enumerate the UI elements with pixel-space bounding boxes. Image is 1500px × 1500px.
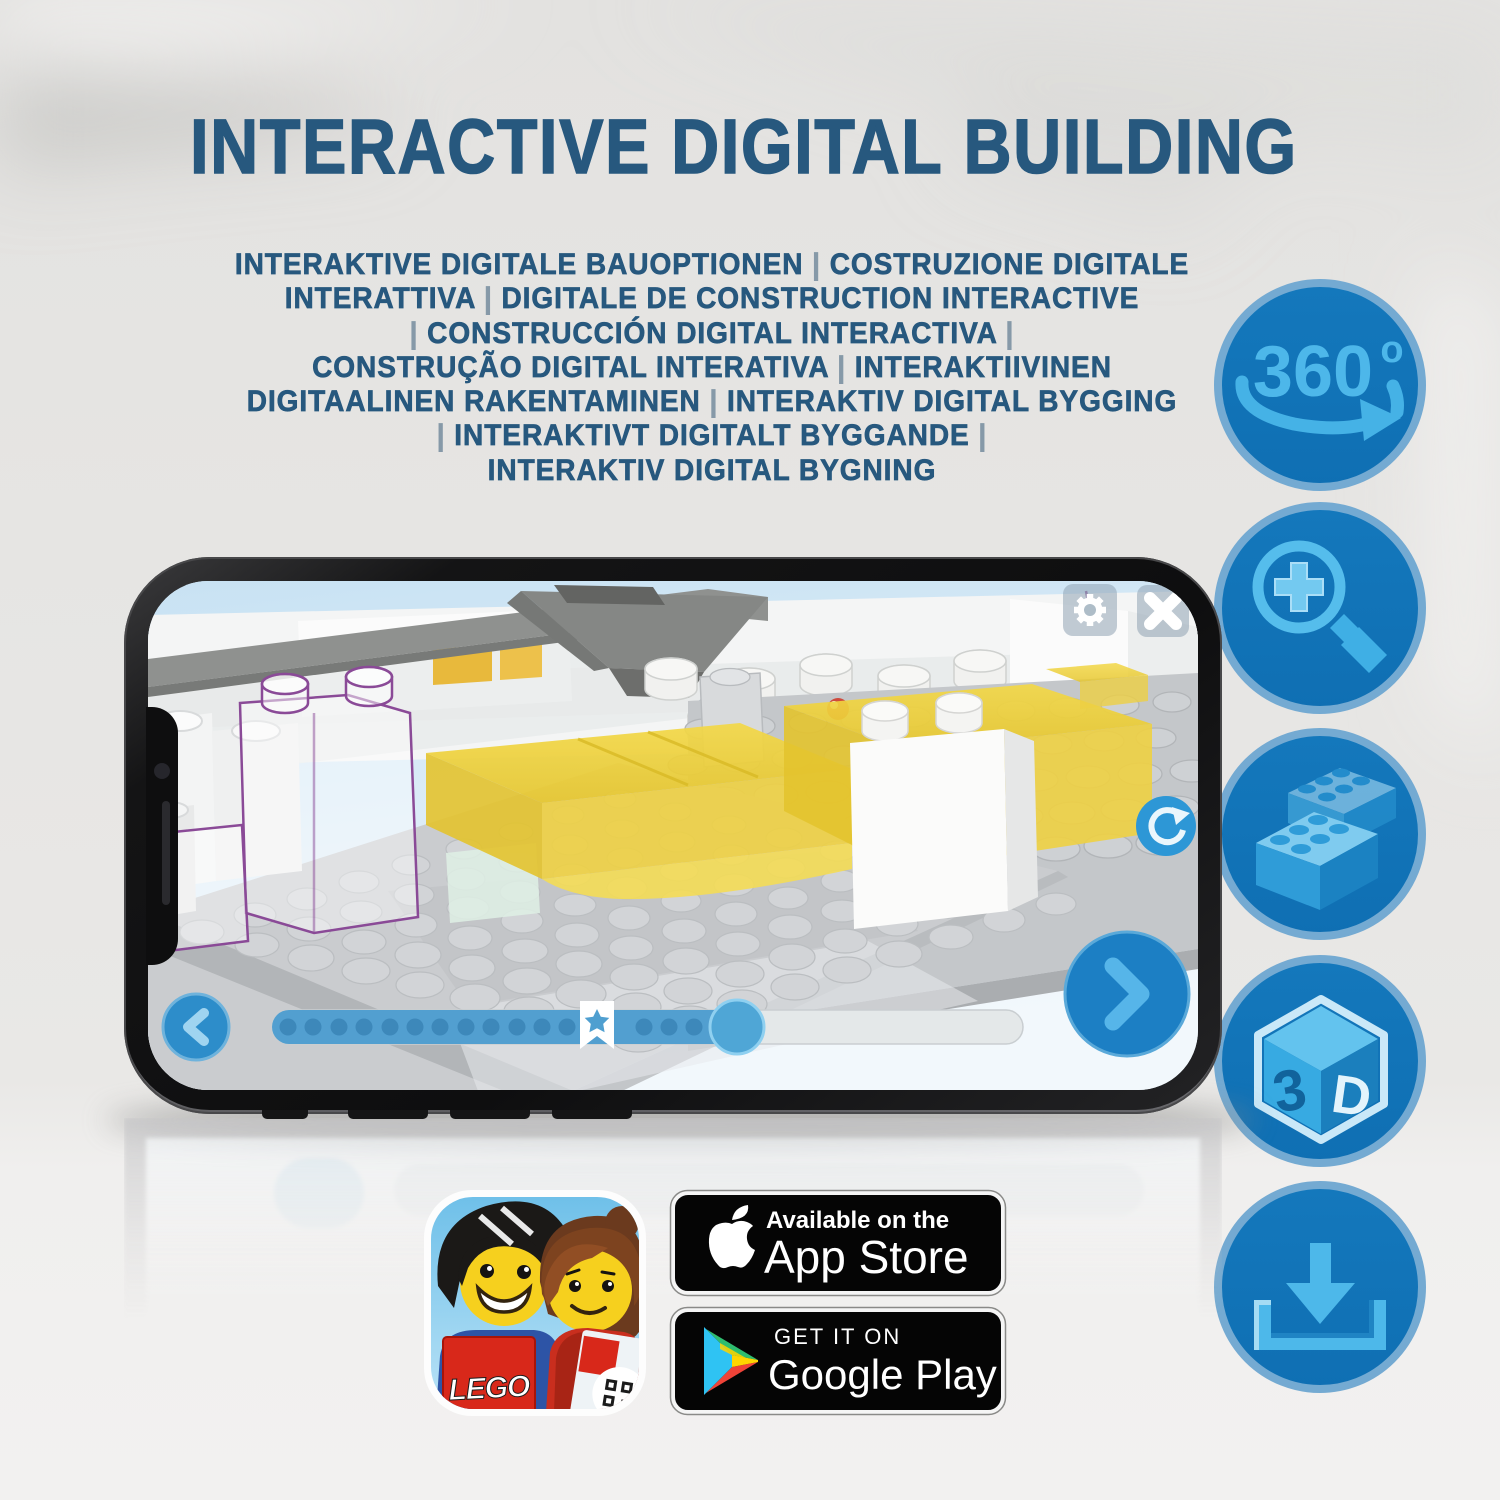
svg-text:Google Play: Google Play: [768, 1351, 997, 1398]
svg-text:LEGO: LEGO: [448, 1370, 531, 1407]
svg-text:Available on the: Available on the: [766, 1207, 949, 1234]
svg-text:360: 360: [1253, 332, 1373, 412]
svg-text:App Store: App Store: [764, 1231, 969, 1283]
svg-text:o: o: [1380, 329, 1403, 371]
svg-text:GET IT ON: GET IT ON: [774, 1324, 901, 1349]
